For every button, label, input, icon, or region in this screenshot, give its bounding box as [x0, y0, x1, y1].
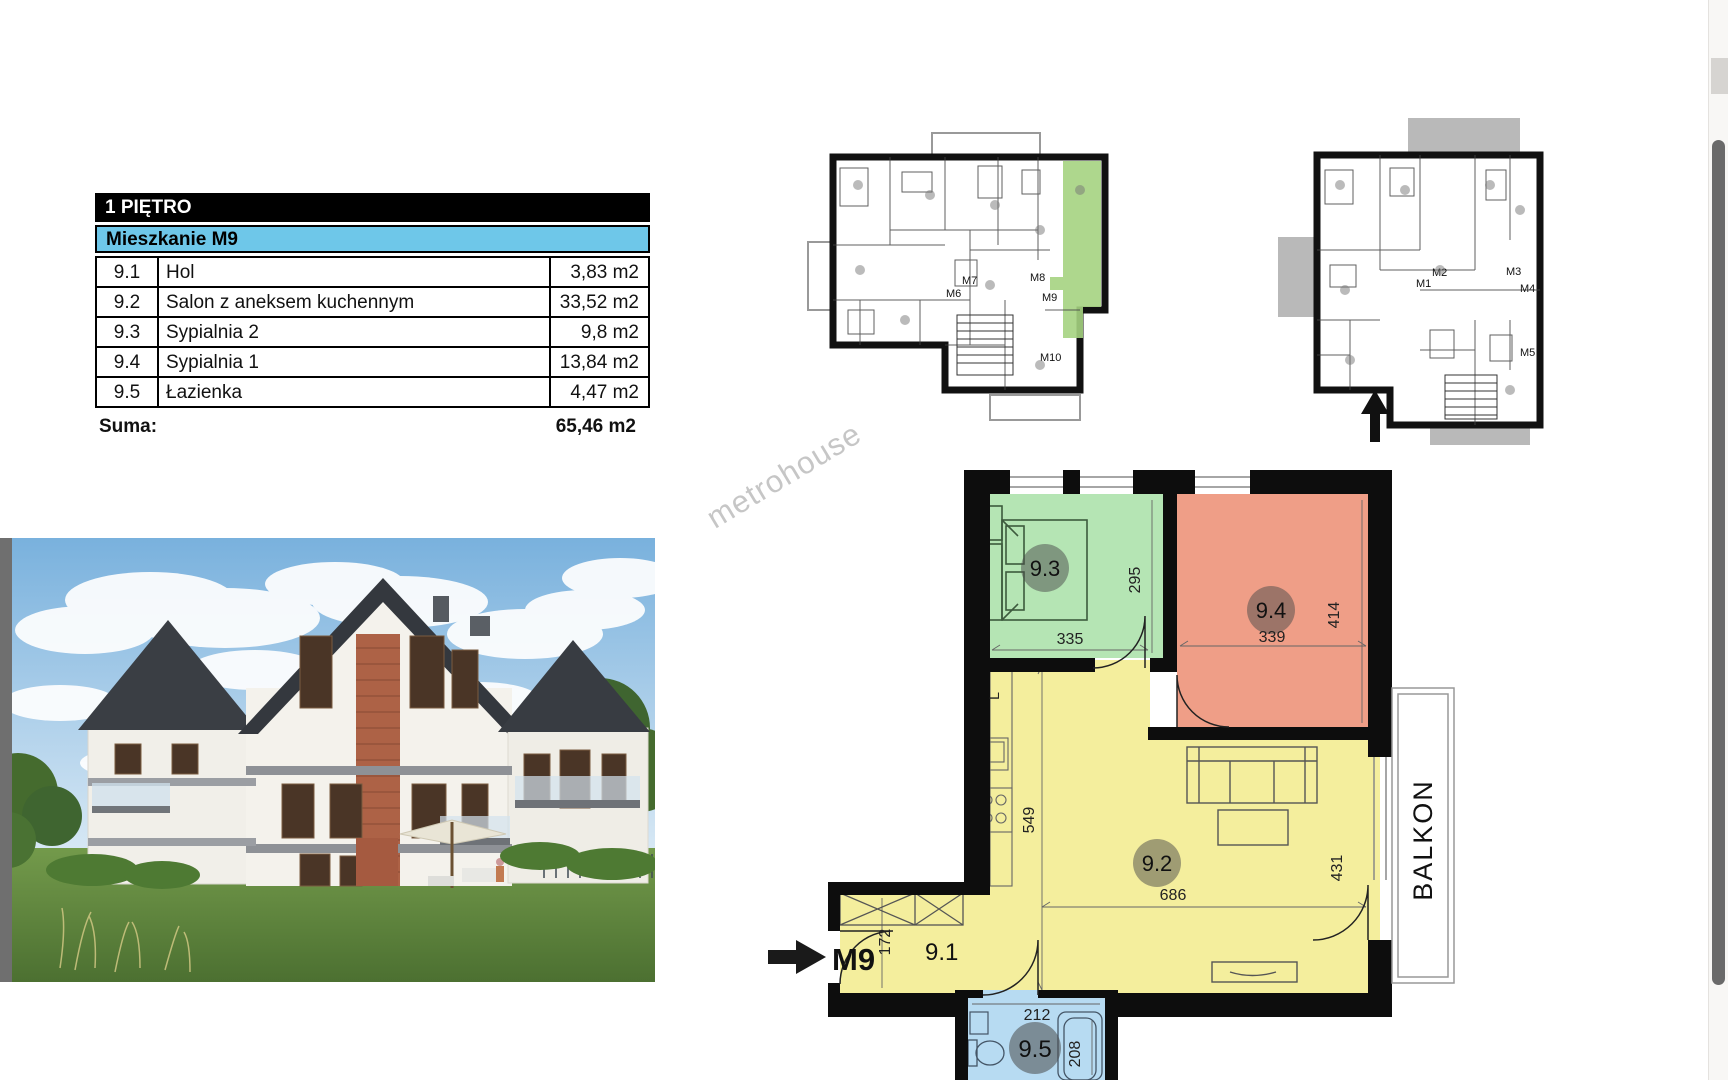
- dim-bathroom-width: 212: [1024, 1007, 1051, 1024]
- dim-living-width: 686: [1160, 887, 1187, 904]
- room-name-cell: Hol: [159, 258, 551, 286]
- room-number-cell: 9.1: [97, 258, 159, 286]
- apartment-label: M3: [1506, 266, 1521, 278]
- table-apartment-header: Mieszkanie M9: [95, 225, 650, 253]
- room-number-hall: 9.1: [925, 939, 958, 966]
- room-number-cell: 9.5: [97, 378, 159, 406]
- page-edge-strip: [0, 538, 12, 982]
- apartment-label: M7: [962, 275, 977, 287]
- apartment-plan-m9: 9.3 9.4 9.2 9.5 9.1 335 295 339 414 549 …: [690, 420, 1480, 1080]
- apartment-label: M1: [1416, 278, 1431, 290]
- room-number-bedroom2: 9.3: [1030, 556, 1061, 581]
- dim-living-height: 431: [1329, 855, 1346, 882]
- table-row: 9.3 Sypialnia 2 9,8 m2: [97, 318, 648, 348]
- table-row: 9.2 Salon z aneksem kuchennym 33,52 m2: [97, 288, 648, 318]
- apartment-label: M9: [1042, 292, 1057, 304]
- room-number-bathroom: 9.5: [1018, 1036, 1051, 1063]
- balcony-label: BALKON: [1408, 779, 1438, 901]
- room-area-cell: 13,84 m2: [551, 348, 648, 376]
- floor-plan-overview-first-floor: M6 M7 M8 M9 M10: [740, 110, 1120, 425]
- room-number-bedroom1: 9.4: [1256, 598, 1287, 623]
- room-name-cell: Sypialnia 1: [159, 348, 551, 376]
- room-name-cell: Sypialnia 2: [159, 318, 551, 346]
- room-name-cell: Salon z aneksem kuchennym: [159, 288, 551, 316]
- dim-hall-width: 172: [877, 929, 894, 956]
- sum-label: Suma:: [95, 417, 157, 436]
- dim-kitchen-height: 549: [1021, 807, 1038, 834]
- apartment-label: M8: [1030, 272, 1045, 284]
- table-row: 9.1 Hol 3,83 m2: [97, 258, 648, 288]
- dim-bathroom-height: 208: [1067, 1041, 1084, 1068]
- floor-plan-overview-ground-floor: M1 M2 M3 M4 M5: [1190, 90, 1550, 450]
- table-row: 9.4 Sypialnia 1 13,84 m2: [97, 348, 648, 378]
- room-area-cell: 3,83 m2: [551, 258, 648, 286]
- building-photo: [0, 538, 655, 982]
- scrollbar-page-button[interactable]: [1711, 58, 1728, 94]
- room-name-cell: Łazienka: [159, 378, 551, 406]
- dim-bedroom2-width: 335: [1057, 631, 1084, 648]
- entrance-arrow-icon: [768, 940, 826, 974]
- table-body: 9.1 Hol 3,83 m2 9.2 Salon z aneksem kuch…: [95, 256, 650, 408]
- kitchen-unit-label: L: [986, 692, 1002, 700]
- table-row: 9.5 Łazienka 4,47 m2: [97, 378, 648, 406]
- entrance-apartment-label: M9: [832, 942, 875, 977]
- apartment-label: M4: [1520, 283, 1535, 295]
- room-number-living: 9.2: [1142, 851, 1173, 876]
- dim-bedroom2-height: 295: [1127, 567, 1144, 594]
- apartment-label: M6: [946, 288, 961, 300]
- dim-bedroom1-width: 339: [1259, 629, 1286, 646]
- area-table: 1 PIĘTRO Mieszkanie M9 9.1 Hol 3,83 m2 9…: [95, 193, 650, 438]
- table-floor-header: 1 PIĘTRO: [95, 193, 650, 222]
- table-sum-row: Suma: 65,46 m2: [95, 414, 650, 438]
- sum-value: 65,46 m2: [556, 417, 650, 436]
- scrollbar-thumb[interactable]: [1712, 140, 1725, 985]
- page-root: { "watermark": { "text": "metrohouse", "…: [0, 0, 1728, 1080]
- dim-bedroom1-height: 414: [1326, 602, 1343, 629]
- room-area-cell: 4,47 m2: [551, 378, 648, 406]
- room-number-cell: 9.2: [97, 288, 159, 316]
- room-number-cell: 9.4: [97, 348, 159, 376]
- room-area-cell: 33,52 m2: [551, 288, 648, 316]
- room-number-cell: 9.3: [97, 318, 159, 346]
- apartment-label: M5: [1520, 347, 1535, 359]
- room-area-cell: 9,8 m2: [551, 318, 648, 346]
